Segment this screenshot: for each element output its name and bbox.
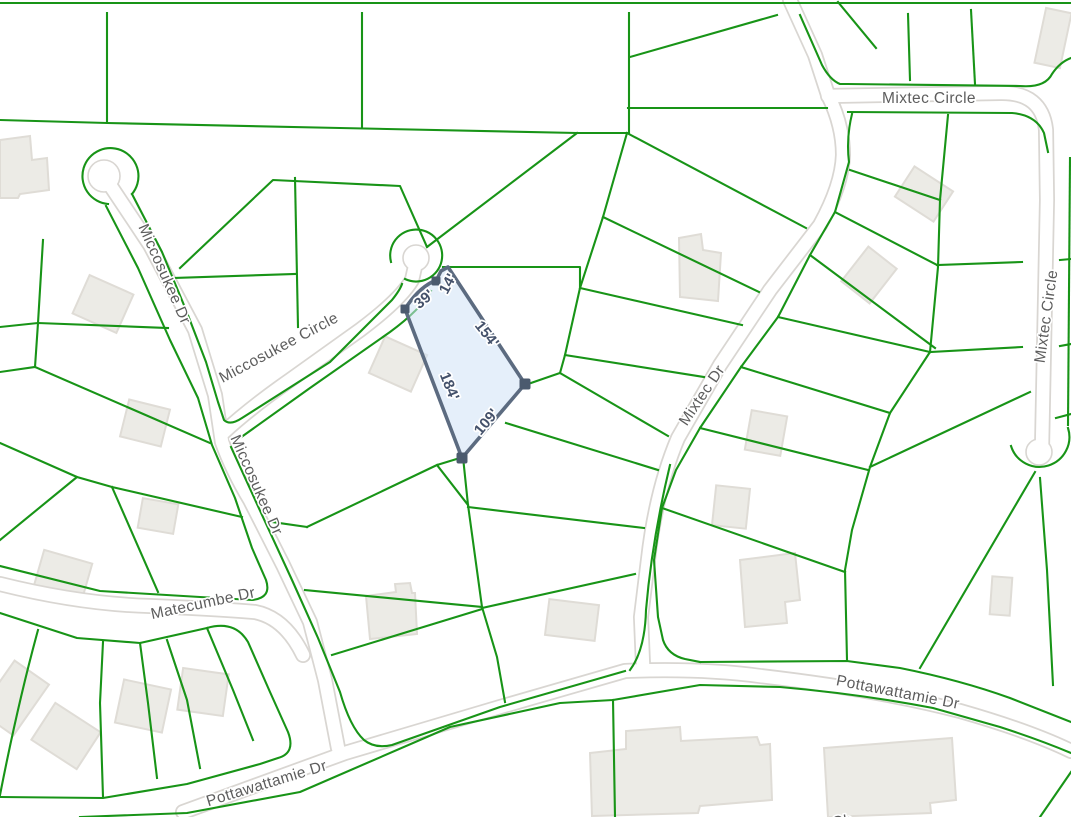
parcel-line	[468, 507, 644, 528]
street-label-pottawattamie-dr-left: Pottawattamie Dr	[204, 757, 329, 810]
building-footprint	[1034, 8, 1071, 68]
parcel-line	[0, 443, 77, 540]
building-footprint	[138, 498, 179, 534]
parcel-vertex-marker[interactable]	[457, 453, 468, 464]
parcel-line	[778, 317, 930, 352]
street-label-miccosukee-dr-upper: Miccosukee Dr	[134, 222, 193, 327]
parcel-line	[463, 457, 505, 702]
parcel-line	[443, 267, 580, 288]
parcel-line	[908, 14, 910, 80]
parcel-line	[920, 472, 1035, 668]
building-footprint	[740, 553, 800, 627]
parcel-vertex-marker[interactable]	[520, 379, 531, 390]
parcel-line	[930, 115, 948, 352]
parcel-line	[565, 355, 704, 377]
parcel-line	[528, 373, 560, 384]
parcel-line	[560, 373, 668, 436]
building-footprint	[0, 136, 49, 198]
parcel-vertex-marker[interactable]	[401, 305, 410, 314]
parcel-line	[971, 10, 975, 84]
building-footprint	[31, 703, 100, 769]
parcel-line	[1040, 772, 1071, 817]
parcel-line	[0, 367, 35, 372]
parcel-line	[627, 133, 806, 228]
parcel-line	[1068, 158, 1070, 425]
building-footprint	[841, 247, 896, 304]
building-footprint	[590, 727, 772, 816]
parcel-line	[741, 367, 890, 413]
parcel-line	[630, 15, 777, 57]
street-label-mixtec-circle-right: Mixtec Circle	[1032, 269, 1062, 364]
parcel-line	[0, 323, 168, 328]
parcel-line	[100, 642, 103, 797]
parcel-line	[35, 240, 43, 367]
parcel-line	[560, 133, 627, 373]
parcel-line	[295, 178, 298, 327]
parcel-line	[838, 2, 876, 48]
building-footprint	[712, 485, 750, 528]
parcel-line	[437, 465, 468, 505]
building-footprint	[824, 738, 956, 817]
parcel-map[interactable]: 39' 14' 154' 184' 109' Miccosukee Dr Mic…	[0, 0, 1071, 817]
street-label-mixtec-circle-top: Mixtec Circle	[882, 90, 976, 107]
parcel-line	[835, 212, 937, 265]
building-footprint	[545, 599, 599, 641]
parcel-line	[845, 352, 930, 660]
parcel-line	[1040, 478, 1053, 685]
building-footprint	[115, 679, 171, 732]
parcel-line	[0, 120, 627, 133]
building-footprint	[990, 576, 1013, 615]
parcel-line	[506, 423, 658, 470]
building-footprint	[679, 234, 721, 301]
map-canvas[interactable]: 39' 14' 154' 184' 109' Miccosukee Dr Mic…	[0, 0, 1071, 817]
parcel-line	[172, 274, 295, 278]
parcel-line	[870, 392, 1030, 467]
parcel-line	[427, 133, 577, 247]
